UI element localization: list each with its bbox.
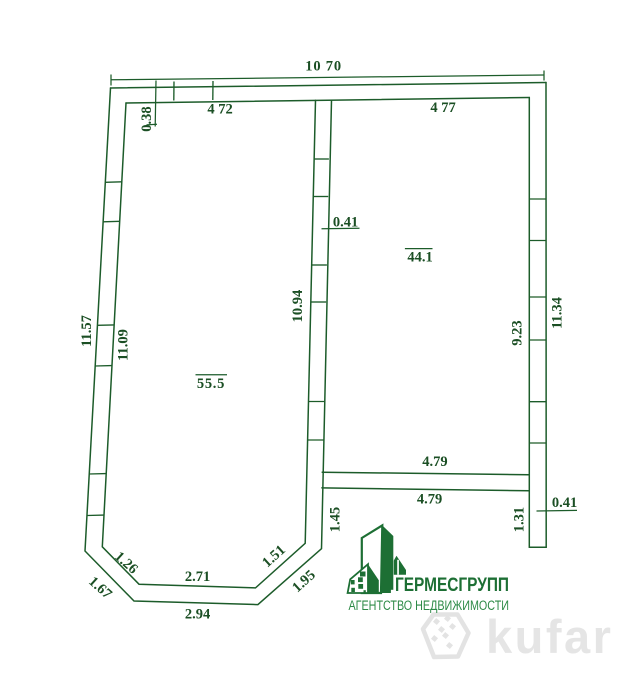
svg-text:11.34: 11.34 [550, 297, 566, 329]
svg-text:4.79: 4.79 [417, 492, 442, 508]
svg-text:0.41: 0.41 [333, 215, 358, 231]
svg-text:44.1: 44.1 [407, 250, 432, 266]
svg-text:ГЕРМЕСГРУПП: ГЕРМЕСГРУПП [395, 574, 509, 596]
svg-text:1.95: 1.95 [289, 567, 319, 596]
svg-text:kufar: kufar [486, 610, 613, 663]
svg-text:1.45: 1.45 [328, 507, 344, 532]
svg-text:1.26: 1.26 [111, 549, 141, 578]
svg-text:0.38: 0.38 [139, 106, 155, 131]
svg-text:АГЕНТСТВО НЕДВИЖИМОСТИ: АГЕНТСТВО НЕДВИЖИМОСТИ [349, 598, 510, 613]
svg-text:11.57: 11.57 [79, 315, 95, 347]
svg-text:11.09: 11.09 [116, 329, 132, 361]
svg-text:4.79: 4.79 [422, 454, 447, 470]
svg-text:2.94: 2.94 [185, 607, 210, 623]
svg-text:1.31: 1.31 [512, 507, 528, 532]
svg-text:55.5: 55.5 [197, 376, 225, 392]
svg-text:9.23: 9.23 [510, 320, 526, 345]
svg-text:4 72: 4 72 [207, 102, 232, 118]
svg-text:10 70: 10 70 [305, 59, 342, 75]
svg-text:4 77: 4 77 [430, 100, 455, 116]
svg-text:0.41: 0.41 [552, 495, 577, 511]
svg-text:2.71: 2.71 [185, 569, 210, 585]
svg-text:1.51: 1.51 [259, 542, 289, 571]
svg-text:10.94: 10.94 [290, 290, 306, 323]
